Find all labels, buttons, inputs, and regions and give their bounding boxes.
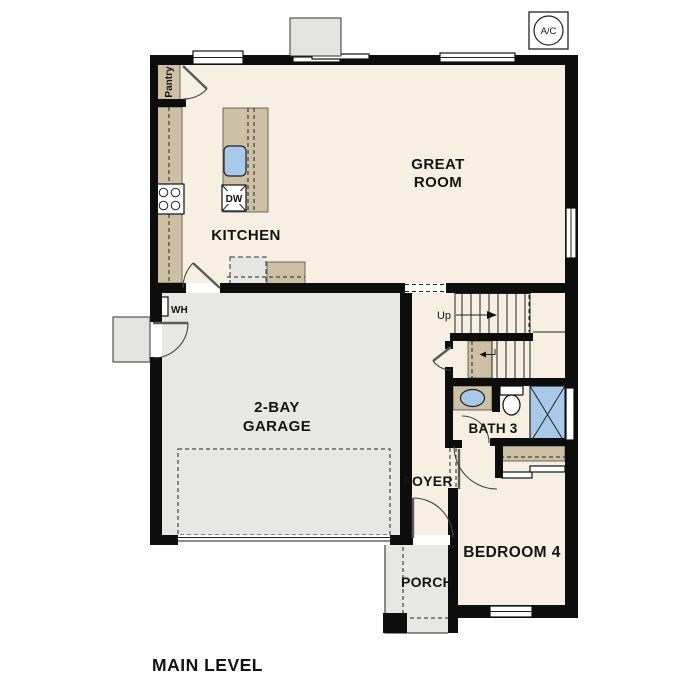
pantry-wall (150, 99, 186, 107)
porch-post (383, 613, 407, 633)
bath-partition (492, 386, 500, 412)
closet-left-wall (495, 438, 503, 478)
garage-label-line2: GARAGE (243, 418, 311, 435)
patio-landing (290, 18, 341, 56)
bath-top-wall (445, 378, 565, 386)
kitchen-label: KITCHEN (211, 227, 280, 244)
closet-bypass-door (530, 466, 565, 472)
stairs-up-label: Up (437, 310, 451, 322)
closet-shelf (500, 446, 565, 461)
bathroom-sink (461, 390, 485, 407)
stair-landing-wall (450, 333, 533, 341)
closet-bypass-door (502, 472, 532, 478)
foyer-label: FOYER (403, 473, 453, 489)
great-room-label-line2: ROOM (414, 174, 462, 191)
range-stove (156, 184, 184, 214)
water-heater-label: WH (171, 305, 188, 316)
side-door-landing (113, 317, 150, 362)
toilet-tank (500, 386, 523, 395)
bath3-label: BATH 3 (469, 421, 518, 436)
plan-title: MAIN LEVEL (152, 655, 263, 675)
great-room-label-line1: GREAT (411, 156, 464, 173)
floor-plan-drawing: A/C Pantry KITCHEN GREAT ROOM DW WH Up 2… (0, 0, 687, 687)
floor-plan: A/C Pantry KITCHEN GREAT ROOM DW WH Up 2… (0, 0, 687, 687)
garage-label-line1: 2-BAY (254, 399, 300, 416)
bath-window (566, 388, 574, 440)
main-floor-area (150, 55, 578, 293)
toilet-bowl (503, 395, 520, 415)
bedroom4-label: BEDROOM 4 (463, 544, 560, 561)
optional-cabinet (230, 257, 266, 287)
ac-label: A/C (541, 26, 557, 37)
pantry-label: Pantry (164, 66, 175, 98)
island-sink (224, 146, 246, 176)
dishwasher-label: DW (226, 194, 243, 205)
porch-label: PORCH (401, 574, 453, 590)
